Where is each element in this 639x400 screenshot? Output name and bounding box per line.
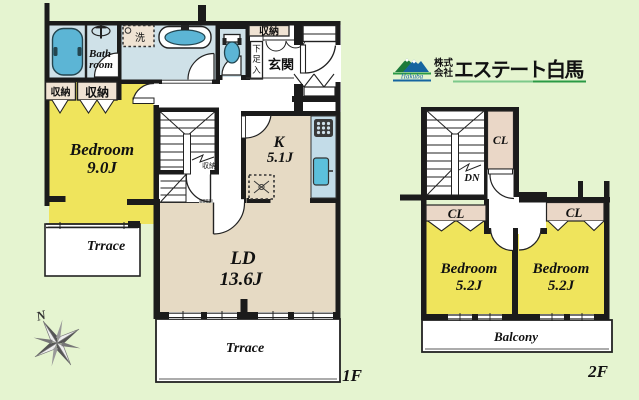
svg-text:CL: CL [493, 133, 508, 147]
svg-text:CL: CL [448, 206, 465, 221]
svg-text:Balcony: Balcony [493, 329, 538, 344]
svg-text:玄関: 玄関 [268, 57, 294, 72]
svg-text:入: 入 [252, 65, 261, 75]
svg-text:Hakuba: Hakuba [400, 73, 424, 81]
svg-text:Trrace: Trrace [87, 239, 125, 254]
svg-text:CL: CL [566, 205, 583, 220]
svg-text:Bedroom: Bedroom [69, 140, 134, 159]
svg-text:下: 下 [252, 44, 261, 54]
svg-text:会社: 会社 [434, 67, 454, 79]
svg-text:K: K [273, 134, 286, 151]
svg-text:洗: 洗 [135, 32, 145, 44]
svg-text:9.0J: 9.0J [87, 158, 117, 177]
svg-text:Bedroom: Bedroom [532, 261, 590, 277]
svg-text:収納: 収納 [51, 86, 71, 99]
svg-text:Bedroom: Bedroom [440, 261, 498, 277]
svg-text:room: room [89, 59, 113, 71]
svg-text:5.2J: 5.2J [456, 278, 483, 294]
svg-text:足: 足 [252, 54, 261, 64]
svg-text:2F: 2F [587, 362, 609, 381]
svg-text:Trrace: Trrace [226, 341, 264, 356]
svg-text:5.1J: 5.1J [267, 150, 294, 166]
svg-text:収納: 収納 [259, 25, 279, 38]
svg-text:DN: DN [463, 173, 480, 184]
svg-text:エステート白馬: エステート白馬 [454, 58, 584, 82]
svg-text:LD: LD [229, 248, 256, 269]
svg-text:5.2J: 5.2J [548, 278, 575, 294]
svg-text:収納: 収納 [85, 85, 109, 100]
svg-text:13.6J: 13.6J [220, 269, 263, 290]
svg-text:収納: 収納 [202, 161, 216, 170]
svg-text:1F: 1F [342, 366, 363, 385]
